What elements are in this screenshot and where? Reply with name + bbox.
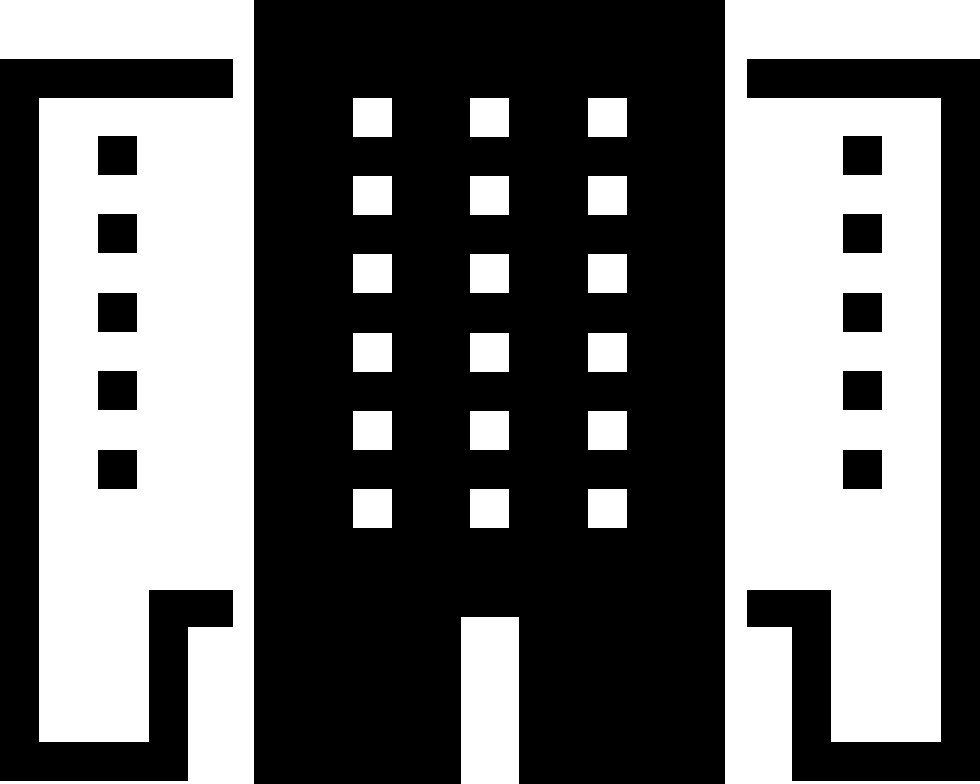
left-building-window — [98, 136, 137, 175]
center-building-window — [588, 489, 627, 528]
center-building-window — [353, 333, 392, 372]
center-building-window — [470, 98, 509, 137]
right-building-window — [843, 136, 882, 175]
left-building-outer-wall — [0, 59, 39, 781]
center-building-window — [588, 411, 627, 450]
center-building-window — [353, 254, 392, 293]
center-building-window — [470, 176, 509, 215]
left-building-window — [98, 293, 137, 332]
center-building-window — [470, 489, 509, 528]
center-building-window — [470, 333, 509, 372]
left-building-window — [98, 214, 137, 253]
center-building-window — [470, 411, 509, 450]
city-buildings-icon — [0, 0, 980, 784]
center-building-door — [461, 617, 519, 784]
center-building-window — [588, 176, 627, 215]
left-building-window — [98, 450, 137, 489]
center-building-window — [353, 98, 392, 137]
center-building-window — [353, 176, 392, 215]
center-building-window — [470, 254, 509, 293]
left-building-step-wall — [149, 590, 188, 781]
right-building-step-wall — [792, 590, 831, 781]
left-building-window — [98, 371, 137, 410]
center-building-window — [353, 489, 392, 528]
center-building-window — [588, 333, 627, 372]
center-building-window — [353, 411, 392, 450]
right-building-window — [843, 293, 882, 332]
right-building-window — [843, 371, 882, 410]
center-building-window — [588, 98, 627, 137]
center-building-window — [588, 254, 627, 293]
right-building-outer-wall — [941, 59, 980, 781]
right-building-window — [843, 214, 882, 253]
right-building-window — [843, 450, 882, 489]
